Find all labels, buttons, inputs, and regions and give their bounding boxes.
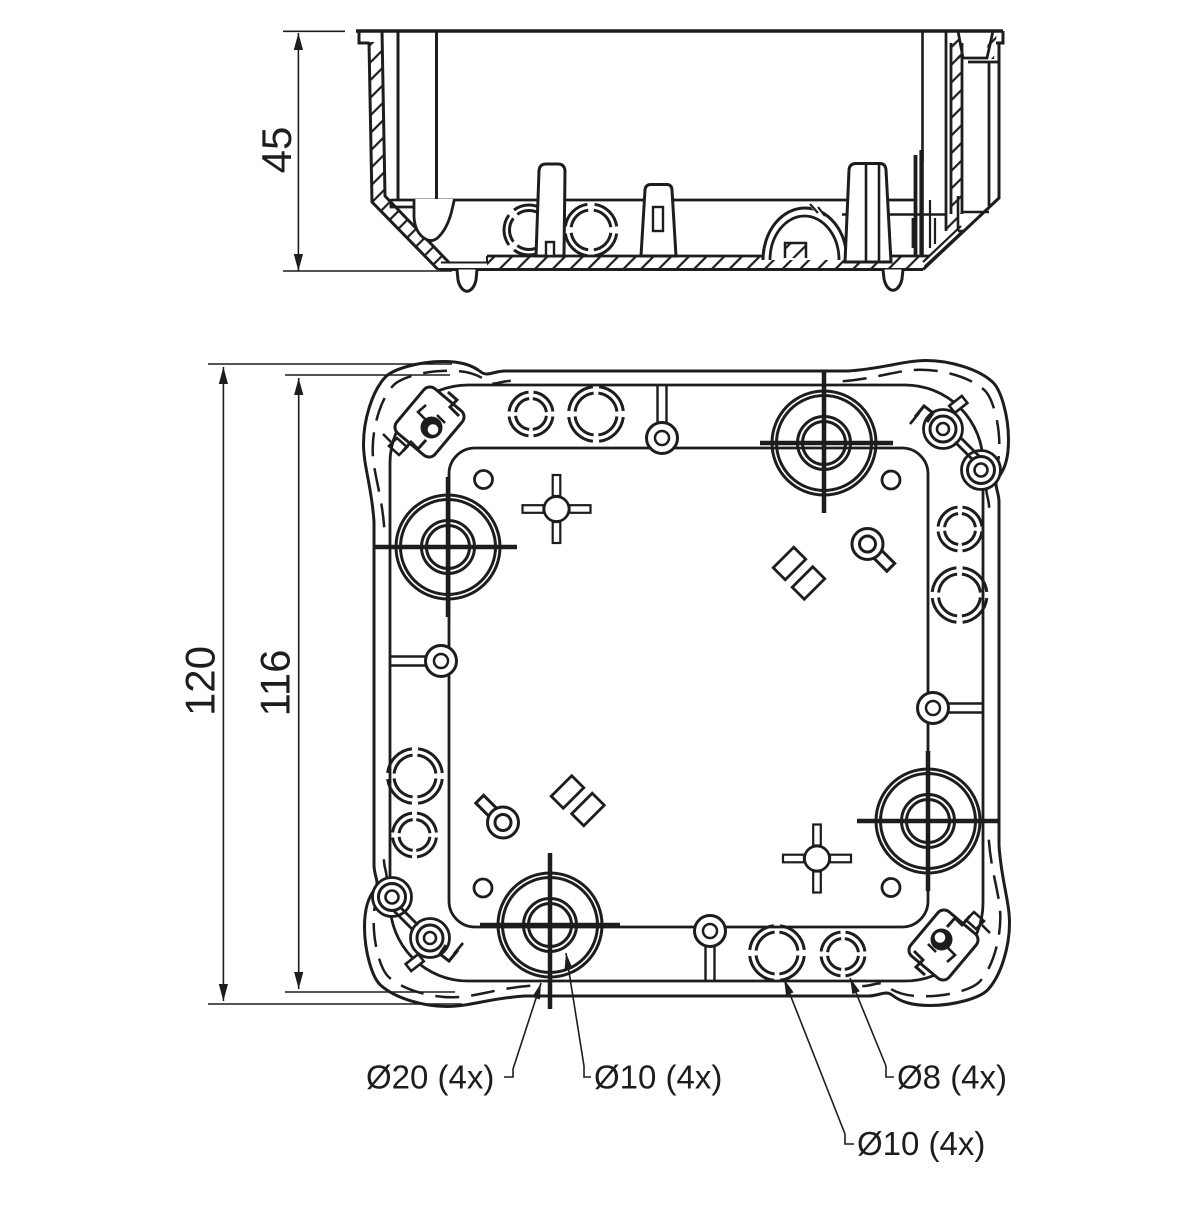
svg-text:Ø10 (4x): Ø10 (4x) bbox=[857, 1125, 985, 1162]
svg-text:Ø8 (4x): Ø8 (4x) bbox=[897, 1059, 1007, 1096]
svg-text:120: 120 bbox=[177, 646, 224, 716]
svg-text:116: 116 bbox=[252, 650, 299, 717]
svg-text:45: 45 bbox=[253, 127, 300, 174]
svg-text:Ø20 (4x): Ø20 (4x) bbox=[366, 1059, 494, 1096]
svg-text:Ø10 (4x): Ø10 (4x) bbox=[594, 1059, 722, 1096]
